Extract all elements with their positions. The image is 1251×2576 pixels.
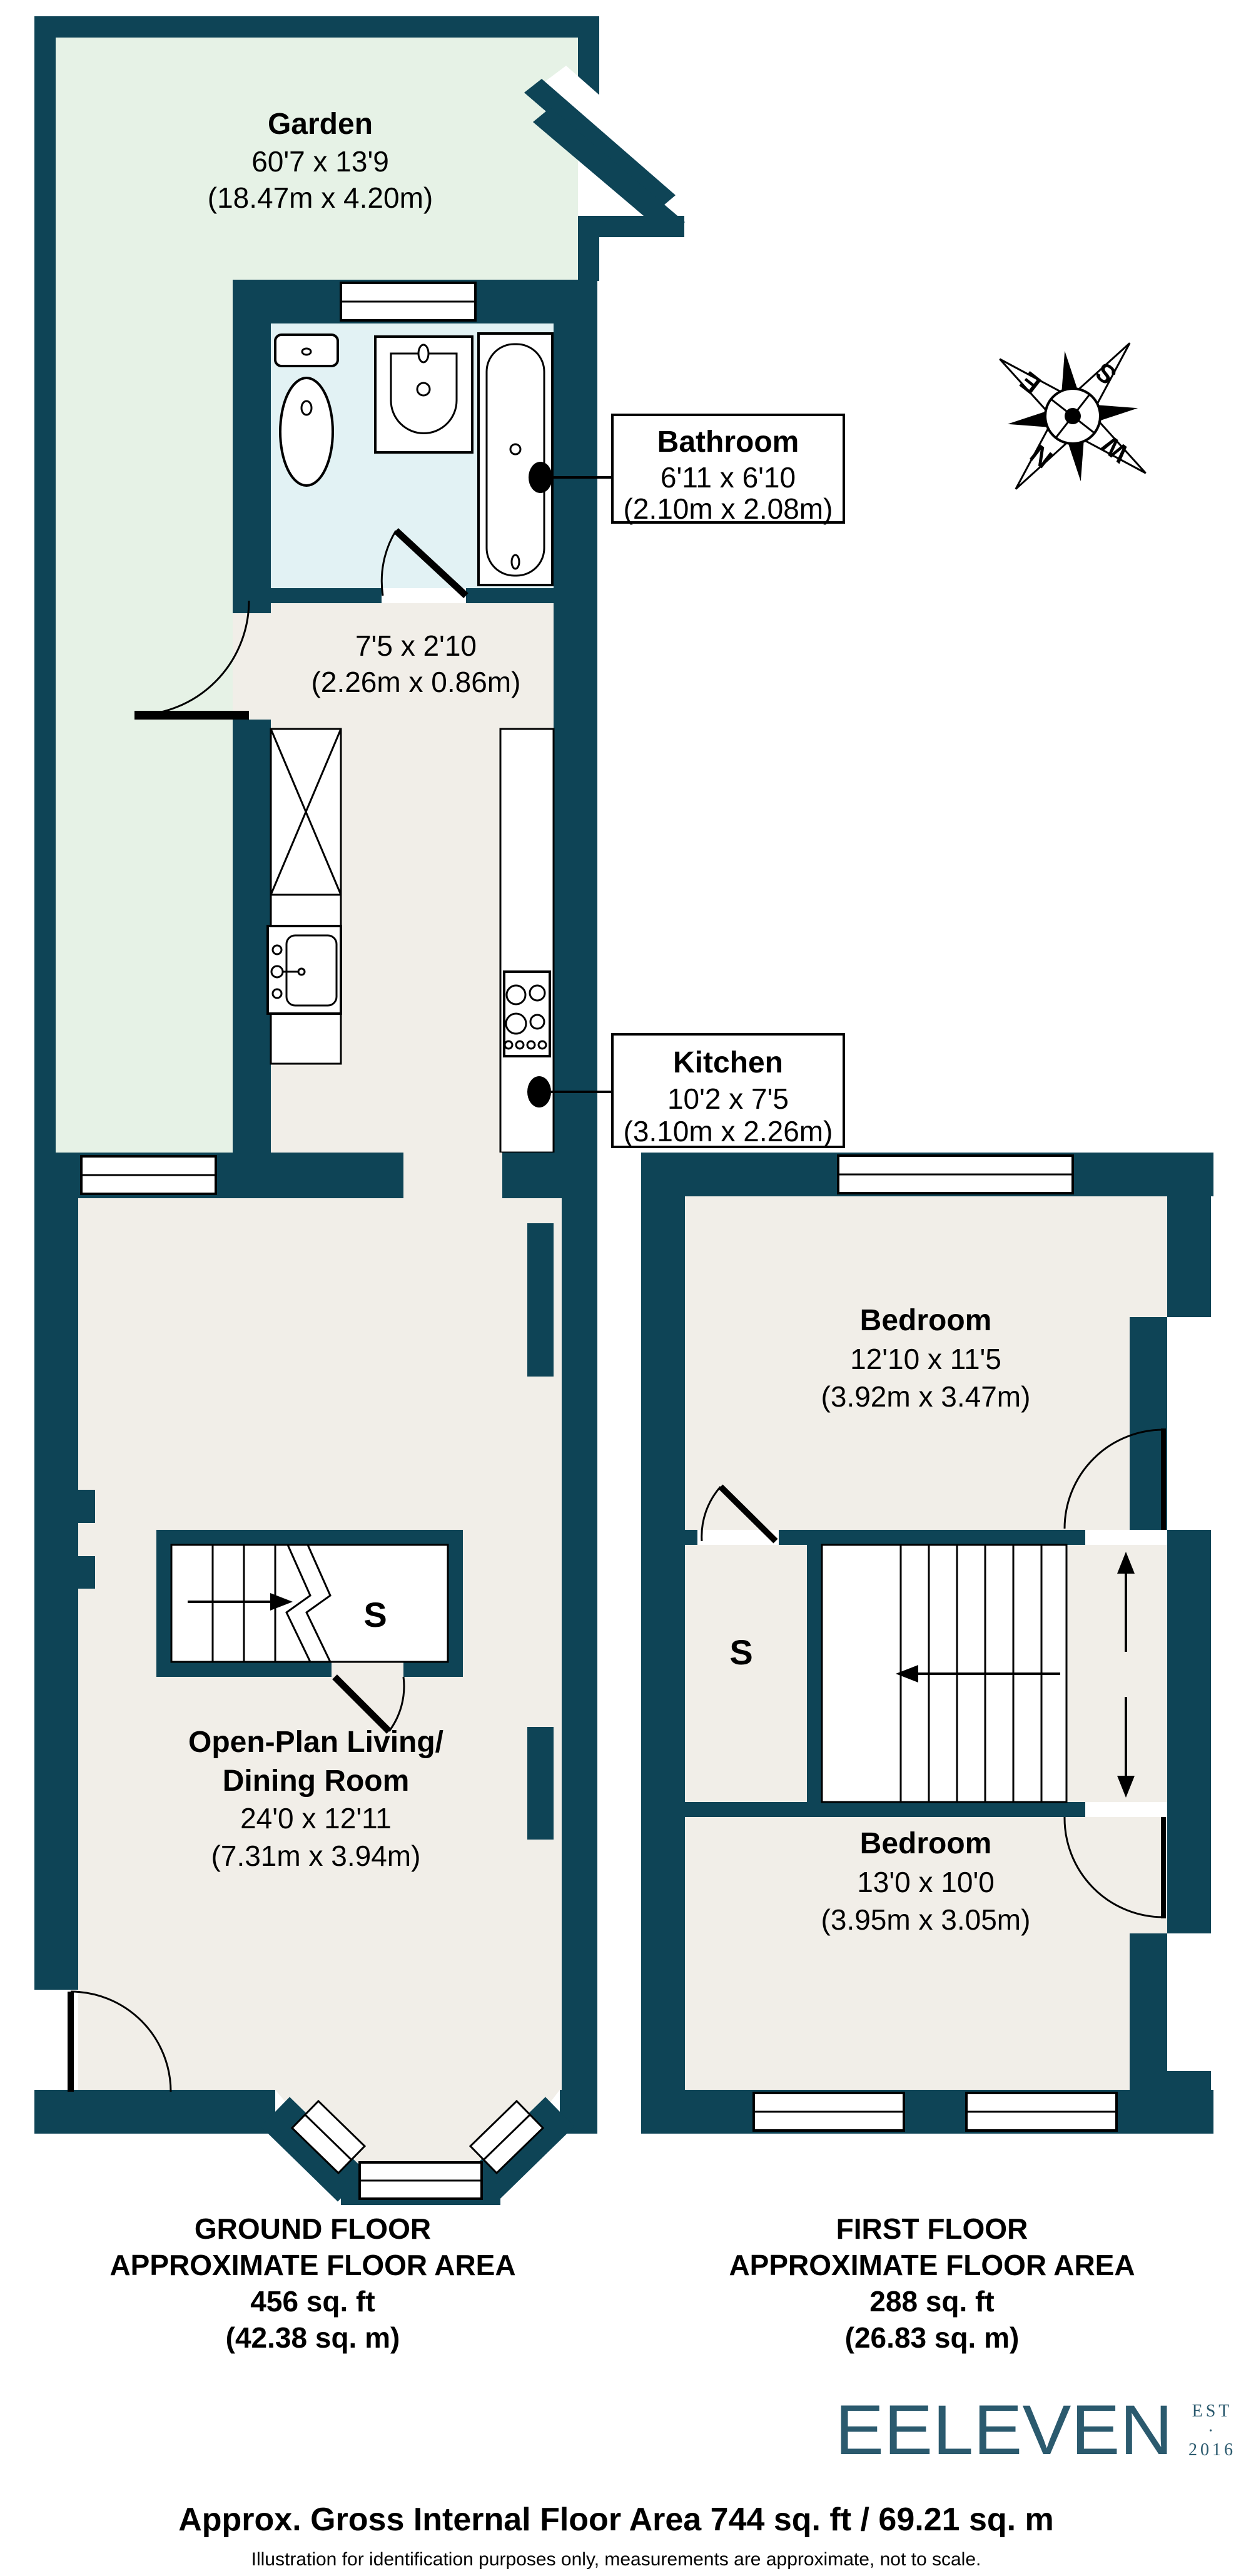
- staircase-first: [822, 1545, 1066, 1802]
- logo-separator: ·: [1208, 2421, 1217, 2441]
- bedroom-back-imperial: 13'0 x 10'0: [857, 1866, 995, 1898]
- toilet-icon: [275, 335, 338, 486]
- bedroom-back-window: [754, 2093, 904, 2131]
- first-floor-summary: FIRST FLOOR APPROXIMATE FLOOR AREA 288 s…: [729, 2212, 1135, 2354]
- living-room-metric: (7.31m x 3.94m): [211, 1840, 421, 1872]
- ground-floor: S: [34, 1153, 597, 2205]
- garden-name: Garden: [268, 108, 373, 141]
- kitchen-metric: (3.10m x 2.26m): [624, 1115, 833, 1148]
- hob-icon: [504, 972, 550, 1056]
- bathroom-window: [341, 283, 475, 320]
- hallway-metric: (2.26m x 0.86m): [311, 666, 521, 698]
- garden-metric: (18.47m x 4.20m): [208, 181, 433, 214]
- living-room-imperial: 24'0 x 12'11: [240, 1802, 392, 1835]
- hallway-imperial: 7'5 x 2'10: [355, 629, 477, 662]
- kitchen-name: Kitchen: [673, 1046, 783, 1079]
- living-room-name-1: Open-Plan Living/: [188, 1726, 443, 1759]
- gross-area-text: Approx. Gross Internal Floor Area 744 sq…: [178, 2502, 1054, 2538]
- logo-year: 2016: [1188, 2440, 1236, 2460]
- living-room-name-2: Dining Room: [223, 1764, 410, 1798]
- garden-imperial: 60'7 x 13'9: [251, 145, 389, 178]
- storage-label-ground: S: [363, 1595, 387, 1634]
- ground-floor-sqft: 456 sq. ft: [250, 2285, 375, 2318]
- first-floor: S: [641, 1153, 1213, 2134]
- ground-floor-title: GROUND FLOOR: [195, 2212, 431, 2245]
- storage-label-first: S: [729, 1632, 752, 1672]
- kitchen-sink-icon: [268, 926, 341, 1014]
- logo-brand: EELEVEN: [835, 2391, 1173, 2469]
- ground-floor-subtitle: APPROXIMATE FLOOR AREA: [109, 2249, 515, 2281]
- ground-floor-summary: GROUND FLOOR APPROXIMATE FLOOR AREA 456 …: [109, 2212, 515, 2354]
- living-room-window: [81, 1156, 216, 1194]
- bedroom-back-window: [966, 2093, 1117, 2131]
- bedroom-front-imperial: 12'10 x 11'5: [850, 1343, 1001, 1375]
- chimney-breast: [527, 1727, 554, 1840]
- bedroom-back-metric: (3.95m x 3.05m): [821, 1903, 1031, 1936]
- agency-logo: EELEVEN EST · 2016: [835, 2391, 1236, 2469]
- kitchen-imperial: 10'2 x 7'5: [667, 1082, 789, 1115]
- logo-est: EST: [1192, 2401, 1233, 2421]
- first-floor-title: FIRST FLOOR: [836, 2212, 1028, 2245]
- bedroom-front-window: [838, 1156, 1073, 1193]
- bathroom-imperial: 6'11 x 6'10: [661, 461, 796, 494]
- first-floor-subtitle: APPROXIMATE FLOOR AREA: [729, 2249, 1135, 2281]
- bathroom-metric: (2.10m x 2.08m): [624, 492, 833, 525]
- wall-nib: [78, 1556, 95, 1589]
- sink-icon: [375, 337, 472, 452]
- wall-nib: [78, 1490, 95, 1523]
- bathroom-name: Bathroom: [657, 425, 799, 459]
- bathtub-icon: [479, 333, 552, 585]
- compass-rose: N E S W: [943, 286, 1202, 546]
- chimney-breast: [527, 1223, 554, 1377]
- first-floor-sqft: 288 sq. ft: [869, 2285, 994, 2318]
- footer: Approx. Gross Internal Floor Area 744 sq…: [178, 2502, 1054, 2570]
- disclaimer-text: Illustration for identification purposes…: [251, 2549, 981, 2570]
- first-floor-sqm: (26.83 sq. m): [845, 2321, 1020, 2354]
- bedroom-front-name: Bedroom: [860, 1304, 992, 1337]
- floorplan-page: S: [0, 0, 1251, 2576]
- bedroom-back-name: Bedroom: [860, 1827, 992, 1860]
- ground-floor-sqm: (42.38 sq. m): [226, 2321, 400, 2354]
- bedroom-front-metric: (3.92m x 3.47m): [821, 1380, 1031, 1413]
